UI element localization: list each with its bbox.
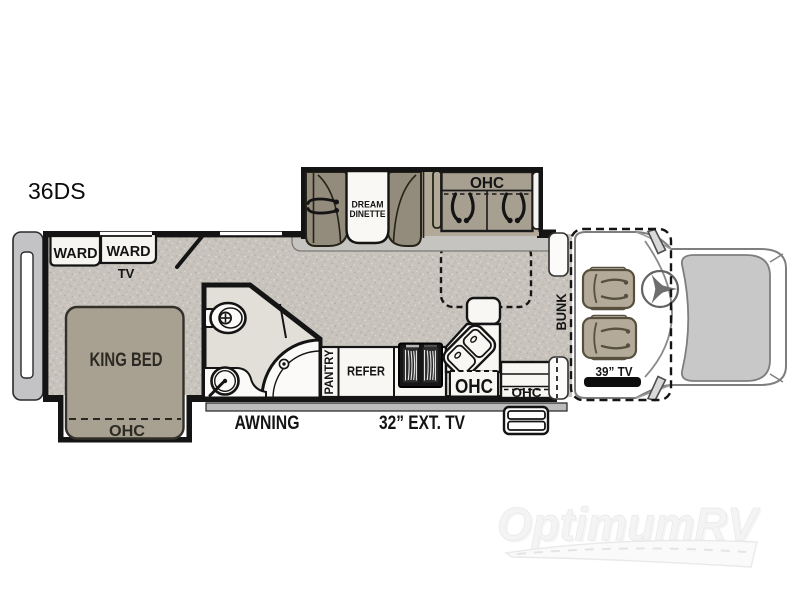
- svg-text:TV: TV: [118, 266, 135, 281]
- svg-text:PANTRY: PANTRY: [322, 350, 336, 395]
- svg-text:32” EXT. TV: 32” EXT. TV: [379, 413, 465, 434]
- svg-text:KING BED: KING BED: [90, 350, 163, 371]
- svg-text:REFER: REFER: [347, 365, 385, 379]
- svg-text:39” TV: 39” TV: [596, 364, 633, 379]
- svg-text:DINETTE: DINETTE: [350, 209, 386, 220]
- svg-text:OHC: OHC: [455, 376, 493, 398]
- svg-text:OHC: OHC: [512, 385, 543, 400]
- svg-text:BUNK: BUNK: [554, 293, 569, 330]
- svg-text:WARD: WARD: [107, 243, 151, 260]
- svg-text:OHC: OHC: [470, 175, 504, 192]
- svg-text:OHC: OHC: [109, 423, 145, 440]
- svg-text:36DS: 36DS: [28, 178, 86, 204]
- svg-text:AWNING: AWNING: [235, 413, 300, 434]
- svg-text:WARD: WARD: [54, 245, 98, 262]
